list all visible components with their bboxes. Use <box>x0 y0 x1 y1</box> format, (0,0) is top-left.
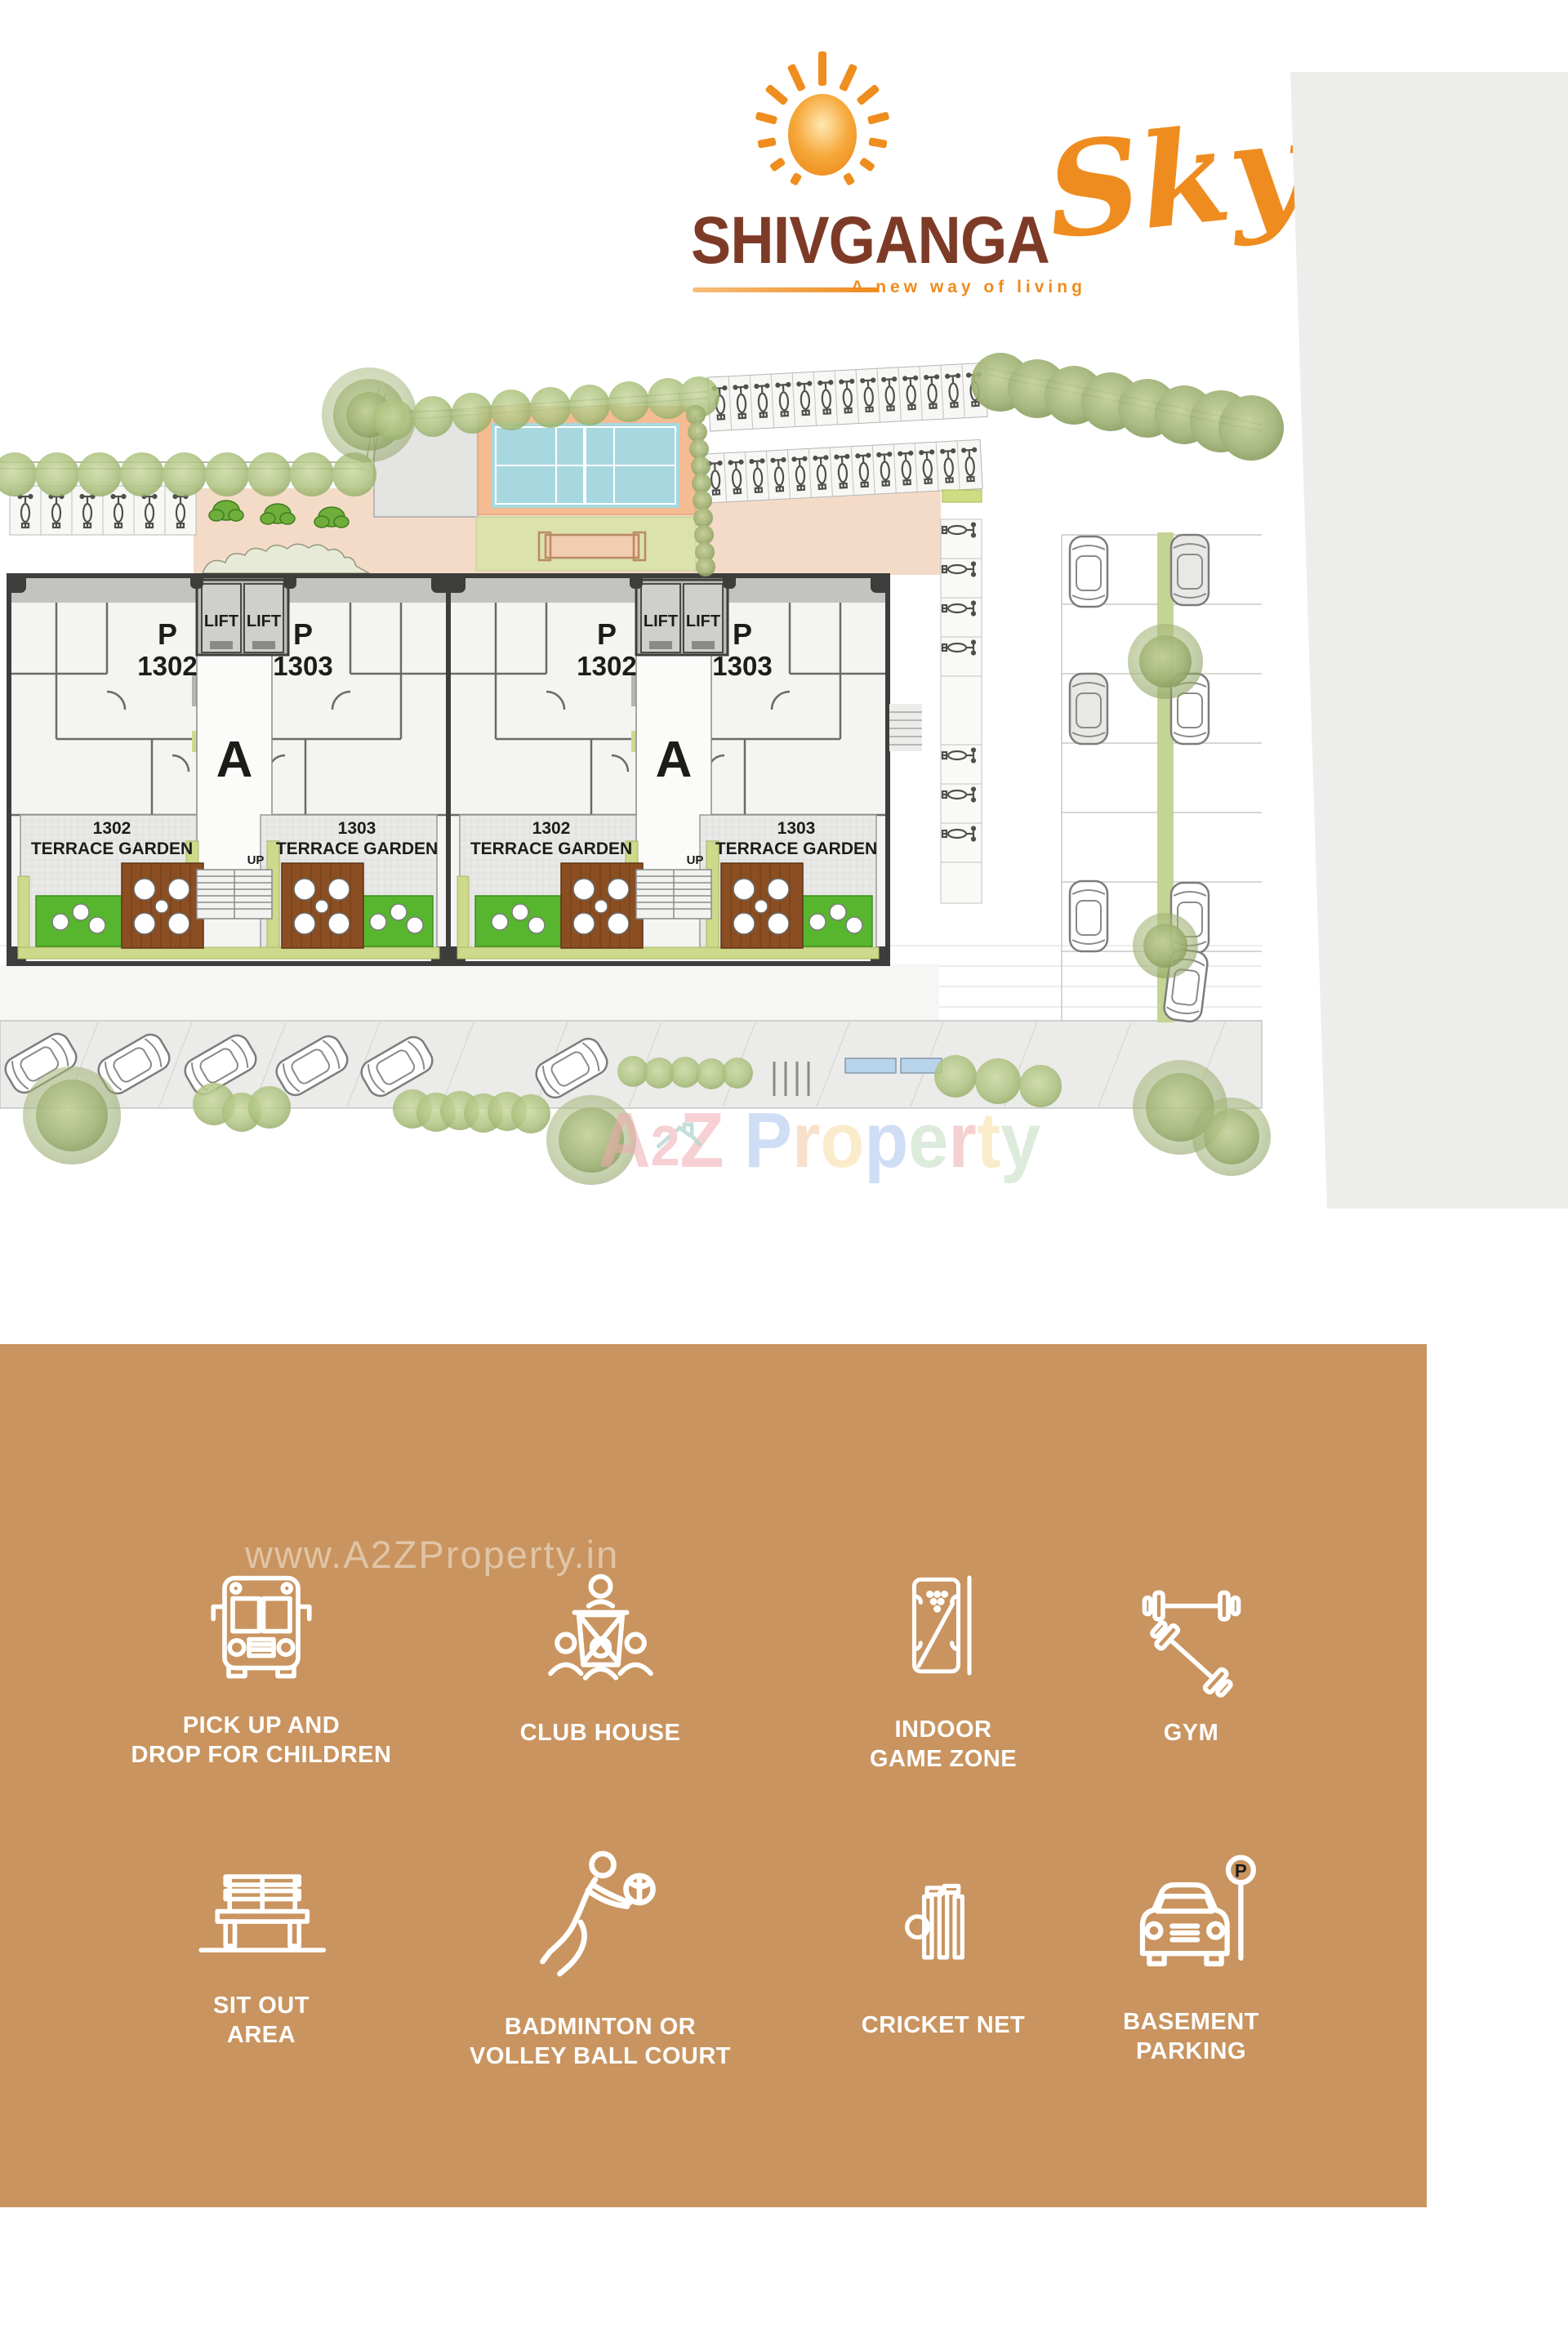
site-plan: P 1302 P 1303 LIFT LIFT A 1302 TERRACE G… <box>0 0 1568 1225</box>
amenity-basement-parking: P BASEMENTPARKING <box>1094 1852 1288 2040</box>
court-lawn <box>476 517 696 571</box>
amenity-sit-out: SIT OUTAREA <box>114 1852 408 2040</box>
bench-icon <box>180 1852 343 1975</box>
bike-parking-row-1 <box>707 363 987 431</box>
volleyball-icon <box>527 1852 674 1996</box>
billiards-icon <box>889 1560 999 1699</box>
a2z-property-watermark: A2Z Property <box>599 1096 1040 1186</box>
amenities-grid: PICK UP ANDDROP FOR CHILDREN CLUB HOUSE <box>114 1560 1288 2040</box>
page: { "logo": { "brand": "SHIVGANGA", "scrip… <box>0 0 1568 2351</box>
gym-icon <box>1130 1560 1253 1702</box>
parking-icon: P <box>1120 1852 1263 1991</box>
external-stair <box>889 704 922 751</box>
amenity-indoor-games: INDOORGAME ZONE <box>792 1560 1094 1748</box>
wing-2 <box>446 573 890 966</box>
svg-text:P: P <box>1235 1860 1247 1881</box>
amenity-club-house: CLUB HOUSE <box>408 1560 792 1748</box>
wing-1 <box>7 573 451 966</box>
amenities-panel: www.A2ZProperty.in PICK UP ANDDROP FOR C… <box>0 1344 1427 2207</box>
cricket-icon <box>886 1852 1000 1994</box>
club-house-icon <box>533 1560 668 1702</box>
amenity-cricket-net: CRICKET NET <box>792 1852 1094 2040</box>
amenity-gym: GYM <box>1094 1560 1288 1748</box>
bike-parking-column <box>941 490 982 903</box>
adjacent-parcel <box>1290 72 1568 1209</box>
amenity-badminton-volleyball: BADMINTON ORVOLLEY BALL COURT <box>408 1852 792 2040</box>
amenity-pickup-drop: PICK UP ANDDROP FOR CHILDREN <box>114 1560 408 1748</box>
bus-icon <box>200 1560 323 1694</box>
